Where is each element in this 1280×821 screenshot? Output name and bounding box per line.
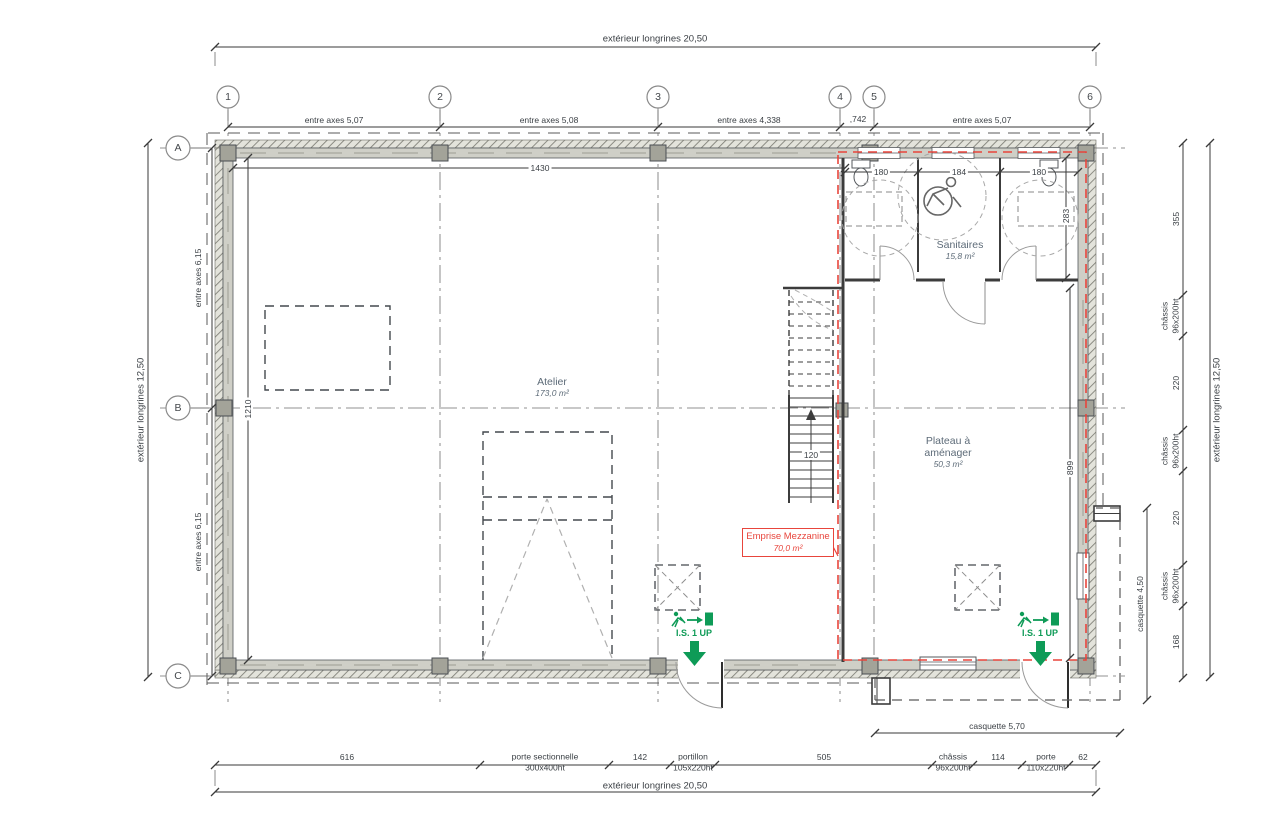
dim-right-355: 355 bbox=[1171, 212, 1181, 226]
dim-left-exterior: extérieur longrines 12,50 bbox=[136, 358, 147, 463]
dim-span-5-6: entre axes 5,07 bbox=[953, 115, 1012, 125]
grid-bubble-row-b: B bbox=[174, 402, 181, 414]
dim-interior-1430: 1430 bbox=[529, 163, 552, 173]
footing-outline bbox=[655, 565, 700, 610]
dim-bottom-62: 62 bbox=[1078, 752, 1087, 762]
grid-bubble-col-3: 3 bbox=[655, 91, 661, 103]
grid-bubble-row-a: A bbox=[174, 142, 181, 154]
dim-span-b-c: entre axes 6,15 bbox=[193, 513, 203, 572]
dim-casquette-bottom: casquette 5,70 bbox=[969, 721, 1025, 731]
dim-right-chassis-1: châssis 96x200ht bbox=[1159, 299, 1180, 334]
grid-bubble-col-5: 5 bbox=[871, 91, 877, 103]
grid-bubble-col-1: 1 bbox=[225, 91, 231, 103]
mezzanine-label: Emprise Mezzanine 70,0 m² bbox=[742, 528, 834, 557]
dim-bottom-142: 142 bbox=[633, 752, 647, 762]
dim-san-180-right: 180 bbox=[1030, 167, 1048, 177]
dim-span-1-2: entre axes 5,07 bbox=[305, 115, 364, 125]
dim-bottom-chassis: châssis 96x200ht bbox=[936, 751, 971, 772]
dim-san-180-left: 180 bbox=[872, 167, 890, 177]
dim-bottom-616: 616 bbox=[340, 752, 354, 762]
dim-casquette-right: casquette 4,50 bbox=[1135, 576, 1145, 632]
dim-bottom-114: 114 bbox=[991, 752, 1005, 762]
dim-bottom-505: 505 bbox=[817, 752, 831, 762]
grid-bubble-col-2: 2 bbox=[437, 91, 443, 103]
dim-span-2-3: entre axes 5,08 bbox=[520, 115, 579, 125]
hidden-lines bbox=[265, 306, 1000, 660]
room-label-atelier: Atelier 173,0 m² bbox=[535, 376, 569, 398]
dim-bottom-porte: porte 110x220ht bbox=[1026, 751, 1065, 772]
plan-graphics bbox=[0, 0, 1280, 821]
dim-span-4-5: ,742 bbox=[850, 114, 867, 124]
grid-lines bbox=[160, 110, 1125, 702]
room-label-sanitaires: Sanitaires 15,8 m² bbox=[937, 239, 984, 261]
floor-plan: extérieur longrines 20,50 1 2 3 4 5 6 A … bbox=[0, 0, 1280, 821]
grid-bubble-col-4: 4 bbox=[837, 91, 843, 103]
dim-stair-120: 120 bbox=[802, 450, 820, 460]
dim-bottom-exterior: extérieur longrines 20,50 bbox=[603, 781, 708, 792]
grid-bubble-row-c: C bbox=[174, 670, 182, 682]
dim-top-exterior: extérieur longrines 20,50 bbox=[603, 34, 708, 45]
dim-right-168: 168 bbox=[1171, 635, 1181, 649]
interior-walls bbox=[783, 158, 1078, 662]
footing-outline bbox=[955, 565, 1000, 610]
dim-right-exterior: extérieur longrines 12,50 bbox=[1212, 358, 1223, 463]
roof-overhang-lines bbox=[207, 133, 1103, 686]
dim-span-3-4: entre axes 4,338 bbox=[717, 115, 780, 125]
dim-interior-1210: 1210 bbox=[243, 398, 253, 421]
dim-right-220b: 220 bbox=[1171, 511, 1181, 525]
dim-bottom-portillon: portillon 105x220ht bbox=[673, 751, 713, 772]
mezzanine-outline bbox=[830, 152, 1086, 660]
dim-right-220a: 220 bbox=[1171, 376, 1181, 390]
wheelchair-icon bbox=[924, 178, 961, 216]
exit-label-1: I.S. 1 UP bbox=[676, 628, 712, 638]
dim-right-chassis-3: châssis 96x200ht bbox=[1159, 569, 1180, 604]
dim-san-184: 184 bbox=[950, 167, 968, 177]
staircase bbox=[789, 290, 833, 503]
dim-span-a-b: entre axes 6,15 bbox=[193, 249, 203, 308]
dim-bottom-porte-sectionnelle: porte sectionnelle 300x400ht bbox=[512, 751, 579, 772]
dim-san-283: 283 bbox=[1061, 207, 1071, 225]
grid-bubble-col-6: 6 bbox=[1087, 91, 1093, 103]
room-label-plateau: Plateau à aménager 50,3 m² bbox=[911, 435, 985, 469]
dim-plateau-899: 899 bbox=[1065, 459, 1075, 477]
exit-label-2: I.S. 1 UP bbox=[1022, 628, 1058, 638]
dim-right-chassis-2: châssis 96x200ht bbox=[1159, 434, 1180, 469]
